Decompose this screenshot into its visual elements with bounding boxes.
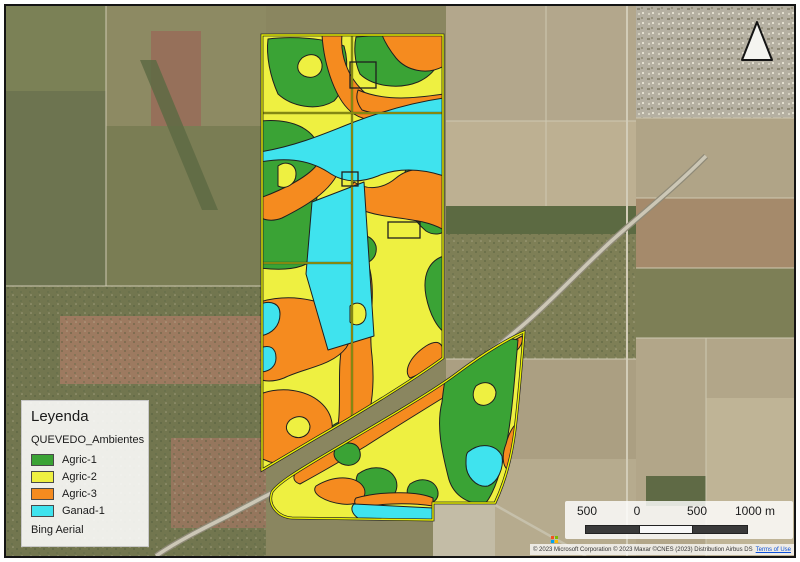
map-frame: Leyenda QUEVEDO_Ambientes Agric-1 Agric-… (4, 4, 796, 558)
legend-item-ganad1: Ganad-1 (31, 505, 139, 517)
legend-basemap-label: Bing Aerial (31, 524, 139, 536)
legend-item-agric2: Agric-2 (31, 471, 139, 483)
scale-label-500-right: 500 (687, 504, 707, 518)
agric2-swatch (31, 471, 54, 483)
scale-bar-segments (585, 525, 748, 534)
attribution-bar: © 2023 Microsoft Corporation © 2023 Maxa… (530, 544, 794, 555)
agric1-swatch (31, 454, 54, 466)
town-area (636, 6, 794, 118)
map-canvas[interactable]: Leyenda QUEVEDO_Ambientes Agric-1 Agric-… (6, 6, 794, 556)
microsoft-logo-icon (551, 536, 558, 543)
agric3-swatch (31, 488, 54, 500)
attribution-text: © 2023 Microsoft Corporation © 2023 Maxa… (533, 547, 753, 553)
scale-bar: 500 0 500 1000 m (565, 501, 793, 539)
ganad1-swatch (31, 505, 54, 517)
legend-item-agric3: Agric-3 (31, 488, 139, 500)
scale-label-1000m: 1000 m (735, 504, 775, 518)
scale-label-500-left: 500 (577, 504, 597, 518)
legend-panel: Leyenda QUEVEDO_Ambientes Agric-1 Agric-… (21, 400, 149, 547)
scale-label-0: 0 (634, 504, 641, 518)
legend-title: Leyenda (31, 408, 139, 425)
terms-of-use-link[interactable]: Terms of Use (756, 547, 791, 553)
legend-item-agric1: Agric-1 (31, 454, 139, 466)
legend-layer-name: QUEVEDO_Ambientes (31, 434, 139, 446)
